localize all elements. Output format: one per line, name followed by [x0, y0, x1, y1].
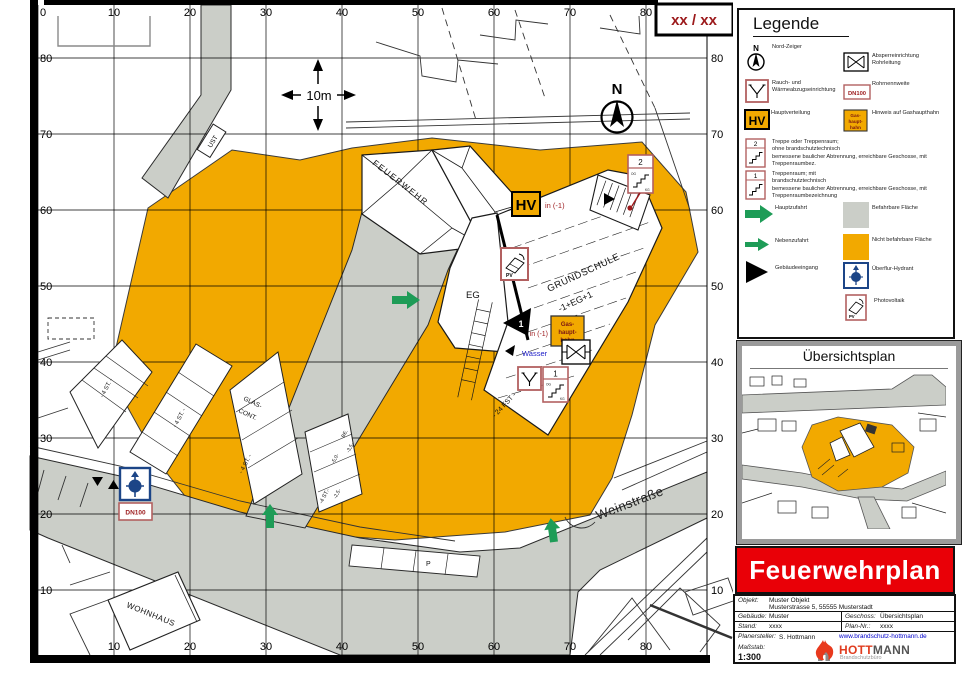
- svg-text:20: 20: [184, 641, 196, 653]
- pv-text: PV: [506, 273, 513, 279]
- eg-label: EG: [466, 290, 480, 301]
- svg-text:DN100: DN100: [848, 91, 866, 97]
- site-plan-map: P: [0, 0, 733, 682]
- svg-text:50: 50: [40, 281, 52, 293]
- website-link[interactable]: www.brandschutz-hottmann.de: [839, 633, 927, 640]
- svg-text:hahn: hahn: [850, 125, 861, 130]
- title-row-objekt: Objekt: Muster Objekt Musterstrasse 5, 5…: [735, 596, 954, 612]
- legend-title: Legende: [753, 14, 819, 34]
- objekt-label: Objekt:: [738, 597, 759, 604]
- north-arrow-icon: N: [745, 43, 767, 73]
- stair-1-og: OG: [546, 383, 551, 387]
- svg-text:80: 80: [640, 641, 652, 653]
- logo-subtitle: Brandschutzbüro: [840, 655, 882, 661]
- svg-text:80: 80: [640, 7, 652, 19]
- svg-text:80: 80: [40, 53, 52, 65]
- svg-text:HV: HV: [749, 114, 766, 128]
- svg-text:2: 2: [754, 141, 758, 148]
- gas-haupthahn-icon: Gas- haupt- hahn: [843, 109, 868, 132]
- svg-text:70: 70: [40, 129, 52, 141]
- svg-text:40: 40: [711, 357, 723, 369]
- svg-text:Gas-: Gas-: [850, 113, 861, 118]
- svg-text:1: 1: [754, 173, 758, 180]
- hauptzufahrt-arrow-icon: [744, 204, 774, 224]
- overview-title: Übersichtsplan: [742, 348, 956, 364]
- stair-1-kg: KG: [560, 397, 565, 401]
- entrance-number: 1: [518, 319, 523, 329]
- svg-text:50: 50: [412, 7, 424, 19]
- svg-text:30: 30: [260, 641, 272, 653]
- svg-text:40: 40: [336, 641, 348, 653]
- plan-ref-text: xx / xx: [671, 12, 718, 29]
- svg-text:40: 40: [40, 357, 52, 369]
- valve-icon: [843, 52, 869, 72]
- scale-text: 10m: [306, 88, 331, 103]
- map-border-left: [30, 0, 38, 663]
- plan-type-banner: Feuerwehrplan: [735, 546, 955, 594]
- stair-2-kg: KG: [645, 188, 650, 192]
- svg-text:PV: PV: [849, 314, 855, 319]
- title-block: Objekt: Muster Objekt Musterstrasse 5, 5…: [733, 594, 956, 664]
- hydrant-symbol-map: [120, 468, 150, 500]
- wasser-label: Wasser: [522, 349, 548, 358]
- svg-text:40: 40: [336, 7, 348, 19]
- svg-text:50: 50: [412, 641, 424, 653]
- pv-symbol-map: PV: [501, 248, 528, 280]
- planersteller-label: Planersteller:: [738, 633, 776, 640]
- massstab-label: Maßstab:: [738, 644, 765, 651]
- title-row-stand: Stand: xxxx Plan-Nr.: xxxx: [735, 622, 954, 632]
- hydrant-icon: [843, 262, 869, 289]
- dn100-text: DN100: [125, 510, 146, 517]
- plan-ref-box: xx / xx: [656, 4, 733, 35]
- valve-symbol-map: [562, 340, 590, 364]
- dn100-icon: DN100: [843, 84, 871, 100]
- hv-text: HV: [516, 197, 537, 214]
- overview-title-rule: [750, 368, 948, 369]
- svg-text:30: 30: [260, 7, 272, 19]
- svg-text:10: 10: [108, 7, 120, 19]
- gebaeude-label: Gebäude:: [738, 613, 767, 620]
- svg-text:30: 30: [40, 433, 52, 445]
- stair-2-number: 2: [638, 158, 643, 167]
- svg-text:10: 10: [711, 585, 723, 597]
- plannr-value: xxxx: [880, 623, 893, 630]
- overview-panel: Übersichtsplan: [737, 341, 961, 544]
- stair-symbol-1-map: 1 OG KG: [543, 367, 568, 402]
- gas-note: in (-1): [530, 331, 548, 338]
- plannr-label: Plan-Nr.:: [845, 623, 870, 630]
- hottmann-flame-logo: [811, 640, 837, 662]
- rwa-symbol-map: [518, 367, 541, 390]
- title-row-planersteller: Planersteller: S. Hottmann Maßstab: 1:30…: [735, 632, 954, 662]
- plan-type-title: Feuerwehrplan: [749, 555, 940, 586]
- svg-text:20: 20: [40, 509, 52, 521]
- svg-text:haupt-: haupt-: [848, 119, 863, 124]
- north-letter: N: [612, 81, 623, 98]
- stand-value: xxxx: [769, 623, 782, 630]
- objekt-address: Musterstrasse 5, 55555 Musterstadt: [769, 604, 873, 611]
- svg-text:60: 60: [488, 7, 500, 19]
- svg-text:N: N: [753, 44, 759, 53]
- stair-symbol-2-map: 2 OG KG: [628, 155, 653, 193]
- geschoss-value: Übersichtsplan: [880, 613, 923, 620]
- gas-text-2: haupt-: [558, 330, 576, 336]
- stair-2-og: OG: [631, 172, 636, 176]
- svg-text:20: 20: [184, 7, 196, 19]
- nicht-befahrbare-flaeche-swatch: [843, 234, 869, 260]
- nebenzufahrt-arrow-icon: [744, 237, 772, 252]
- legend-panel: Legende N Nord-Zeiger Rauch- und Wärmeab…: [737, 8, 955, 339]
- legend-title-rule: [753, 36, 849, 37]
- title-block-divider: [841, 612, 842, 632]
- planersteller-value: S. Hottmann: [779, 634, 815, 641]
- hv-note: in (-1): [545, 201, 565, 210]
- svg-text:70: 70: [711, 129, 723, 141]
- befahrbare-flaeche-swatch: [843, 202, 869, 228]
- svg-text:60: 60: [40, 205, 52, 217]
- gas-text-1: Gas-: [561, 322, 574, 328]
- gebaeudeeingang-triangle-icon: [744, 259, 770, 285]
- rwa-icon: [745, 79, 769, 103]
- massstab-value: 1:300: [738, 652, 761, 662]
- map-border-top: [44, 0, 658, 5]
- objekt-value: Muster Objekt: [769, 597, 809, 604]
- gebaeude-value: Muster: [769, 613, 789, 620]
- stair-2-icon: 2: [745, 138, 766, 168]
- svg-text:10: 10: [40, 585, 52, 597]
- overview-map: [742, 373, 946, 529]
- stair-1-number: 1: [553, 370, 558, 379]
- svg-text:60: 60: [488, 641, 500, 653]
- svg-text:10: 10: [108, 641, 120, 653]
- hv-icon: HV: [744, 109, 770, 130]
- map-border-bottom: [30, 655, 710, 663]
- title-row-gebaeude: Gebäude: Muster Geschoss: Übersichtsplan: [735, 612, 954, 622]
- geschoss-label: Geschoss:: [845, 613, 876, 620]
- dn100-symbol-map: DN100: [119, 503, 152, 520]
- stair-1-icon: 1: [745, 170, 766, 200]
- svg-text:60: 60: [711, 205, 723, 217]
- stand-label: Stand:: [738, 623, 757, 630]
- svg-text:70: 70: [564, 641, 576, 653]
- svg-text:0: 0: [40, 7, 46, 19]
- parking-label: P: [426, 561, 431, 568]
- pv-icon: PV: [845, 294, 867, 321]
- feuerwehrplan-page: P: [0, 0, 963, 682]
- svg-text:30: 30: [711, 433, 723, 445]
- stair-2-pointer-dot: [627, 205, 632, 210]
- svg-text:70: 70: [564, 7, 576, 19]
- hv-symbol: HV: [512, 192, 540, 216]
- svg-text:50: 50: [711, 281, 723, 293]
- svg-text:80: 80: [711, 53, 723, 65]
- svg-text:20: 20: [711, 509, 723, 521]
